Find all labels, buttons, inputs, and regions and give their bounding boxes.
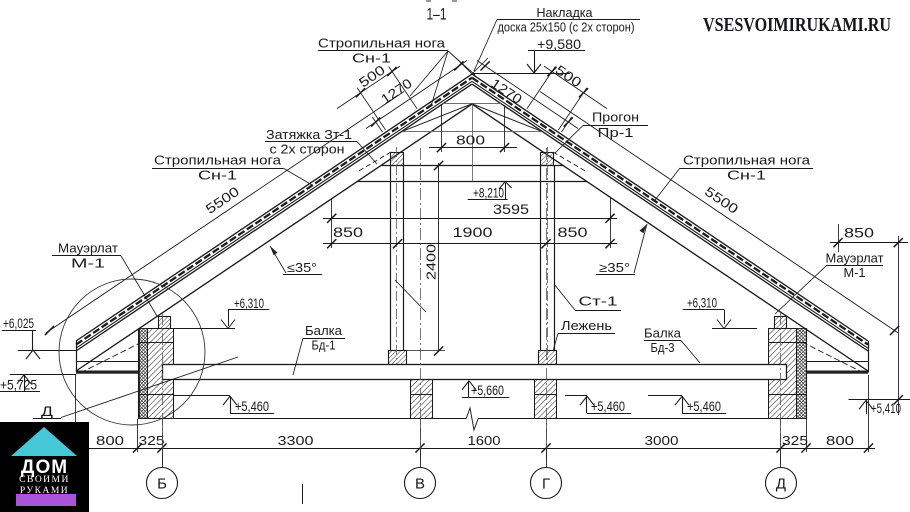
svg-text:850: 850	[558, 225, 588, 240]
svg-text:с 2х сторон: с 2х сторон	[270, 143, 345, 157]
svg-text:доска 25х150 (с 2х сторон): доска 25х150 (с 2х сторон)	[498, 21, 635, 35]
svg-text:Стропильная нога: Стропильная нога	[318, 37, 445, 51]
svg-text:Стропильная нога: Стропильная нога	[154, 154, 281, 168]
svg-text:3000: 3000	[645, 433, 679, 448]
svg-text:М-1: М-1	[71, 256, 105, 270]
svg-text:5500: 5500	[702, 184, 741, 217]
svg-text:Мауэрлат: Мауэрлат	[58, 242, 118, 256]
svg-text:Д: Д	[41, 403, 54, 419]
svg-text:В: В	[415, 476, 425, 493]
svg-text:1600: 1600	[468, 433, 501, 448]
svg-text:+6,310: +6,310	[687, 296, 717, 311]
svg-text:Стропильная нога: Стропильная нога	[683, 154, 810, 168]
svg-text:Пр-1: Пр-1	[598, 126, 634, 140]
svg-text:500: 500	[553, 62, 585, 90]
svg-text:800: 800	[96, 433, 124, 448]
svg-text:+5,660: +5,660	[471, 383, 504, 398]
svg-text:Сн-1: Сн-1	[352, 52, 391, 66]
svg-text:+5,460: +5,460	[235, 399, 269, 414]
svg-text:≤35°: ≤35°	[287, 261, 317, 275]
svg-text:Бд-3: Бд-3	[651, 341, 675, 355]
svg-text:Г: Г	[542, 476, 550, 493]
svg-text:Б: Б	[157, 476, 167, 493]
svg-text:Затяжка Зт-1: Затяжка Зт-1	[266, 128, 352, 142]
svg-text:+5,460: +5,460	[591, 399, 625, 414]
svg-text:Сн-1: Сн-1	[198, 169, 237, 183]
svg-text:+5,460: +5,460	[687, 399, 721, 414]
svg-text:Д: Д	[776, 476, 786, 493]
svg-text:325: 325	[139, 433, 165, 448]
svg-text:Балка: Балка	[644, 327, 681, 341]
svg-text:Лежень: Лежень	[561, 319, 612, 333]
svg-text:+6,025: +6,025	[3, 316, 34, 331]
svg-text:≥35°: ≥35°	[599, 261, 630, 275]
svg-text:500: 500	[356, 62, 388, 90]
svg-text:+8,210: +8,210	[473, 186, 504, 201]
svg-text:1900: 1900	[453, 225, 493, 240]
svg-text:+9,580: +9,580	[537, 37, 581, 52]
svg-text:5500: 5500	[203, 184, 242, 217]
svg-text:Накладка: Накладка	[537, 6, 593, 20]
svg-text:+6,310: +6,310	[234, 296, 264, 311]
svg-text:Бд-1: Бд-1	[312, 339, 336, 353]
svg-text:+5,410: +5,410	[871, 401, 901, 416]
svg-text:Сн-1: Сн-1	[727, 169, 766, 183]
svg-text:3595: 3595	[493, 202, 529, 217]
svg-text:2400: 2400	[425, 244, 439, 280]
svg-text:3300: 3300	[278, 433, 314, 448]
svg-text:850: 850	[333, 225, 363, 240]
svg-text:Балка: Балка	[305, 324, 342, 338]
svg-text:325: 325	[782, 433, 808, 448]
svg-text:1270: 1270	[378, 76, 415, 107]
svg-text:800: 800	[456, 133, 485, 148]
svg-text:850: 850	[844, 226, 874, 241]
svg-text:М-1: М-1	[844, 266, 866, 280]
svg-text:Мауэрлат: Мауэрлат	[826, 252, 884, 266]
svg-text:1–1: 1–1	[427, 6, 447, 24]
svg-text:+5,725: +5,725	[0, 378, 37, 393]
svg-text:800: 800	[826, 433, 854, 448]
svg-text:Ст-1: Ст-1	[579, 295, 618, 309]
svg-text:Прогон: Прогон	[592, 111, 639, 125]
svg-text:VSESVOIMIRUKAMI.RU: VSESVOIMIRUKAMI.RU	[703, 14, 891, 36]
